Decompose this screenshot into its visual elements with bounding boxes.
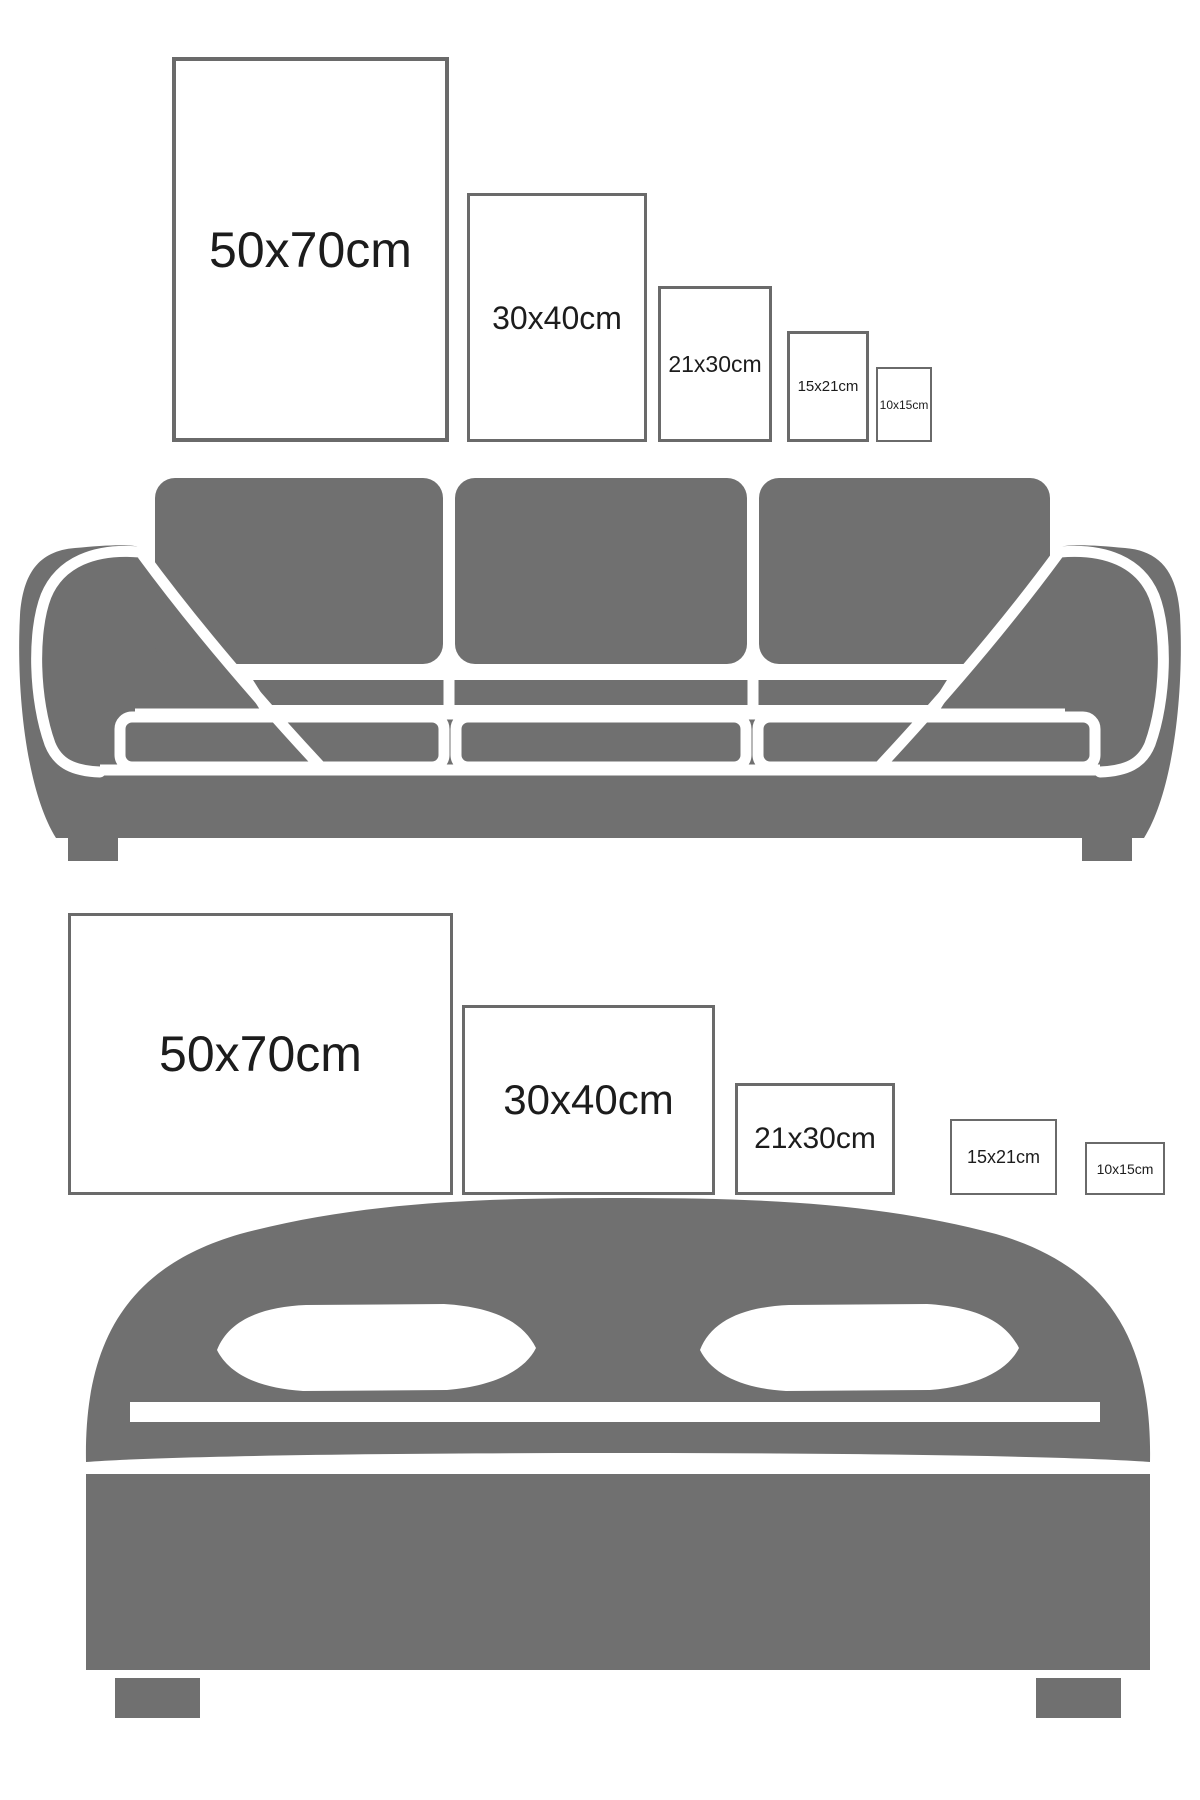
- bed-icon: [86, 1198, 1150, 1718]
- sofa-icon: [19, 478, 1181, 861]
- sofa-seat-cushion: [758, 717, 1095, 767]
- size-frame-10x15-landscape: 10x15cm: [1085, 1142, 1165, 1195]
- size-frame-10x15-portrait: 10x15cm: [876, 367, 932, 442]
- size-label: 10x15cm: [880, 399, 929, 411]
- size-label: 21x30cm: [754, 1124, 876, 1154]
- sofa-seat-deck: [244, 675, 956, 710]
- bed-foot-right: [1036, 1678, 1121, 1718]
- size-frame-30x40-portrait: 30x40cm: [467, 193, 647, 442]
- size-label: 15x21cm: [967, 1148, 1040, 1166]
- size-frame-15x21-landscape: 15x21cm: [950, 1119, 1057, 1195]
- size-frame-21x30-landscape: 21x30cm: [735, 1083, 895, 1195]
- bed-foot-left: [115, 1678, 200, 1718]
- size-label: 50x70cm: [159, 1029, 362, 1079]
- size-frame-50x70-landscape: 50x70cm: [68, 913, 453, 1195]
- size-label: 30x40cm: [492, 302, 622, 334]
- size-label: 30x40cm: [503, 1079, 673, 1121]
- sofa-seat-cushion: [456, 717, 746, 767]
- size-label: 50x70cm: [209, 225, 412, 275]
- size-frame-30x40-landscape: 30x40cm: [462, 1005, 715, 1195]
- bed-base: [86, 1474, 1150, 1670]
- bed-headboard: [86, 1198, 1150, 1462]
- sofa-back-cushion: [759, 478, 1050, 664]
- size-label: 15x21cm: [798, 379, 859, 394]
- sofa-back-cushion: [155, 478, 443, 664]
- poster-size-comparison: 50x70cm 30x40cm 21x30cm 15x21cm 10x15cm …: [0, 0, 1200, 1800]
- size-label: 21x30cm: [668, 353, 761, 376]
- size-label: 10x15cm: [1097, 1162, 1154, 1176]
- sofa-back-cushion: [455, 478, 747, 664]
- size-frame-15x21-portrait: 15x21cm: [787, 331, 869, 442]
- size-frame-21x30-portrait: 21x30cm: [658, 286, 772, 442]
- size-frame-50x70-portrait: 50x70cm: [172, 57, 449, 442]
